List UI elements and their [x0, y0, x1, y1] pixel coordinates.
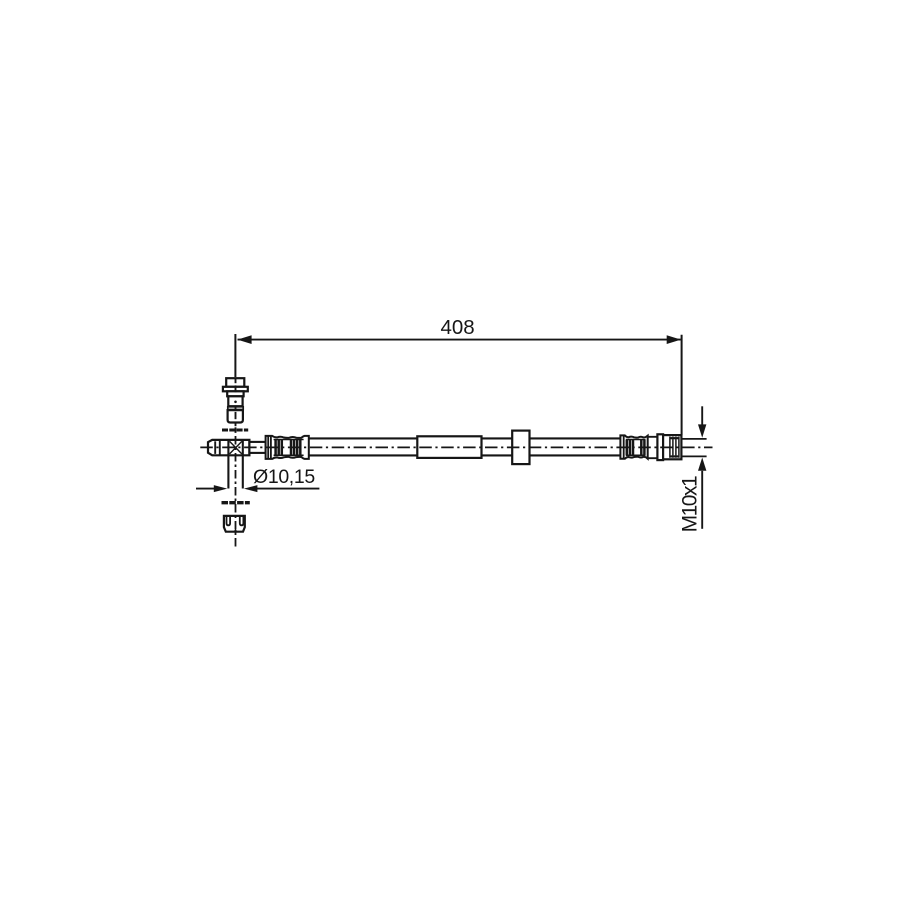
svg-text:408: 408 — [441, 316, 475, 339]
svg-text:Ø10,15: Ø10,15 — [253, 466, 315, 488]
svg-text:M10x1: M10x1 — [678, 476, 701, 532]
